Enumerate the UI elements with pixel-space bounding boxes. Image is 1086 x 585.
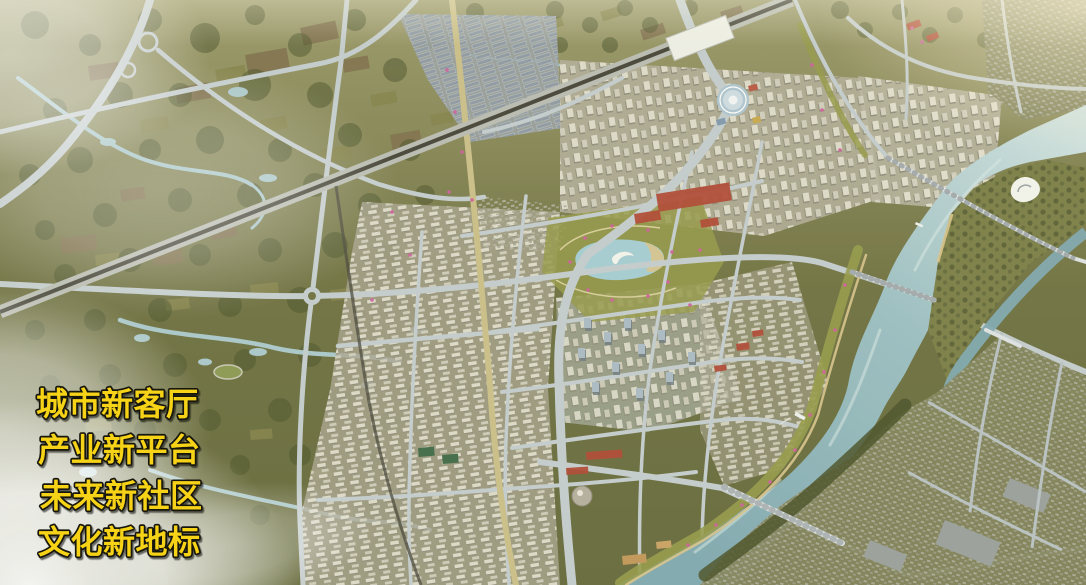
slogan-line-3: 未来新社区 — [40, 477, 203, 515]
render-canvas: 城市新客厅 产业新平台 未来新社区 文化新地标 — [0, 0, 1086, 585]
slogan-line-4: 文化新地标 — [38, 523, 201, 561]
slogan-line-2: 产业新平台 — [38, 431, 201, 469]
aerial-city-rendering: 城市新客厅 产业新平台 未来新社区 文化新地标 — [0, 0, 1086, 585]
slogan-line-1: 城市新客厅 — [36, 385, 199, 423]
